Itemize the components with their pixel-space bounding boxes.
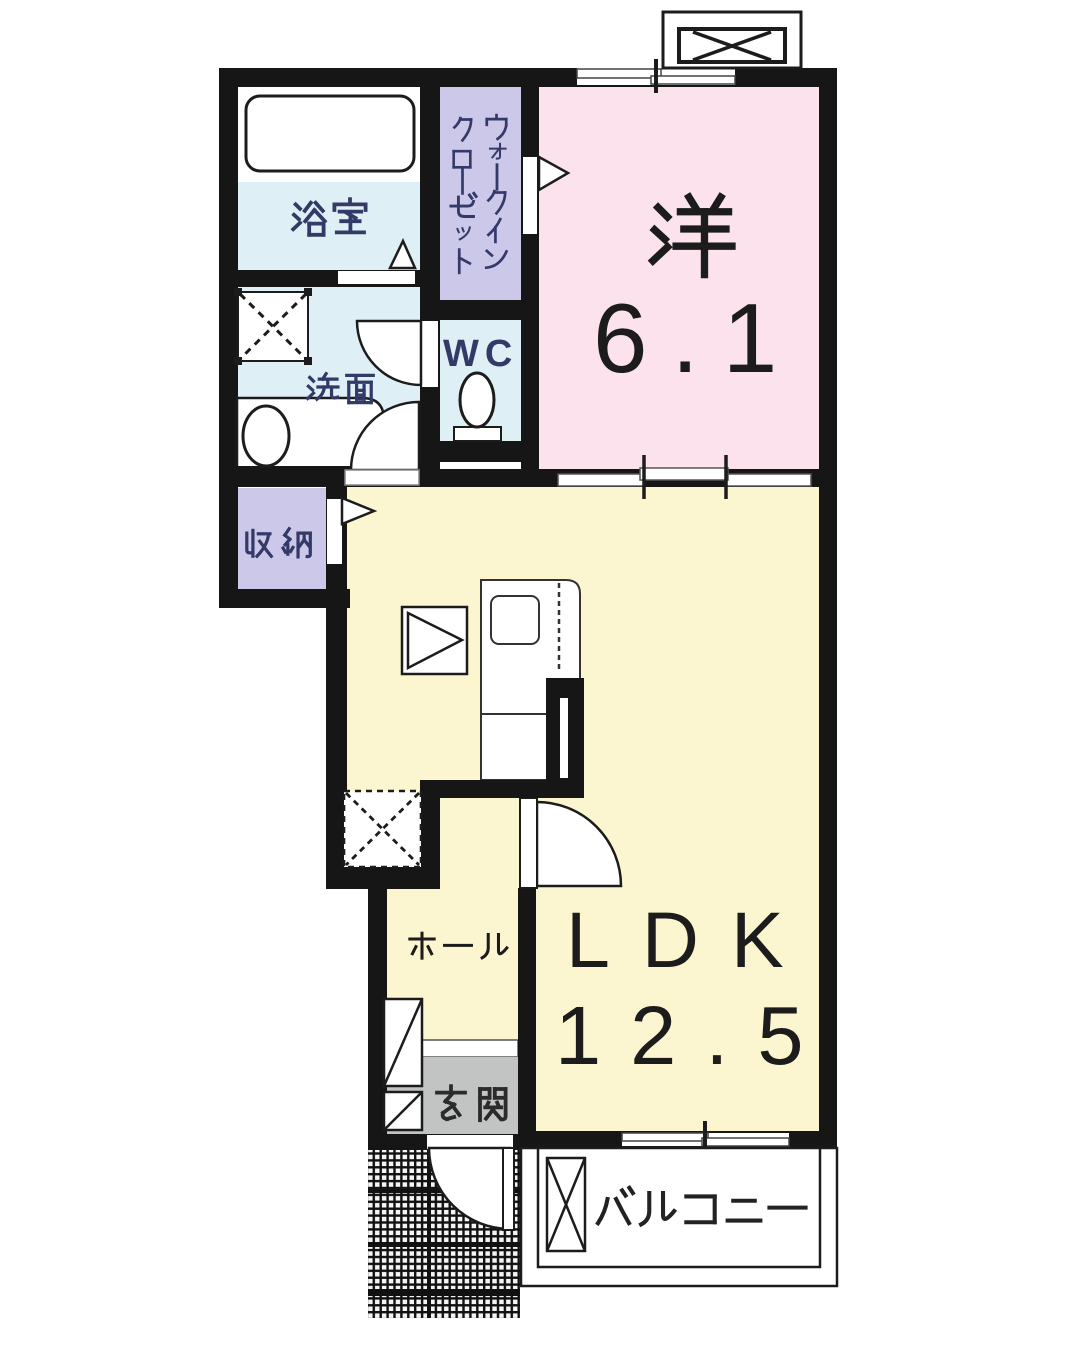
svg-text:6.1: 6.1 (593, 283, 801, 393)
svg-text:LDK: LDK (566, 895, 816, 984)
svg-text:WC: WC (443, 333, 518, 375)
svg-text:12.5: 12.5 (555, 989, 833, 1082)
